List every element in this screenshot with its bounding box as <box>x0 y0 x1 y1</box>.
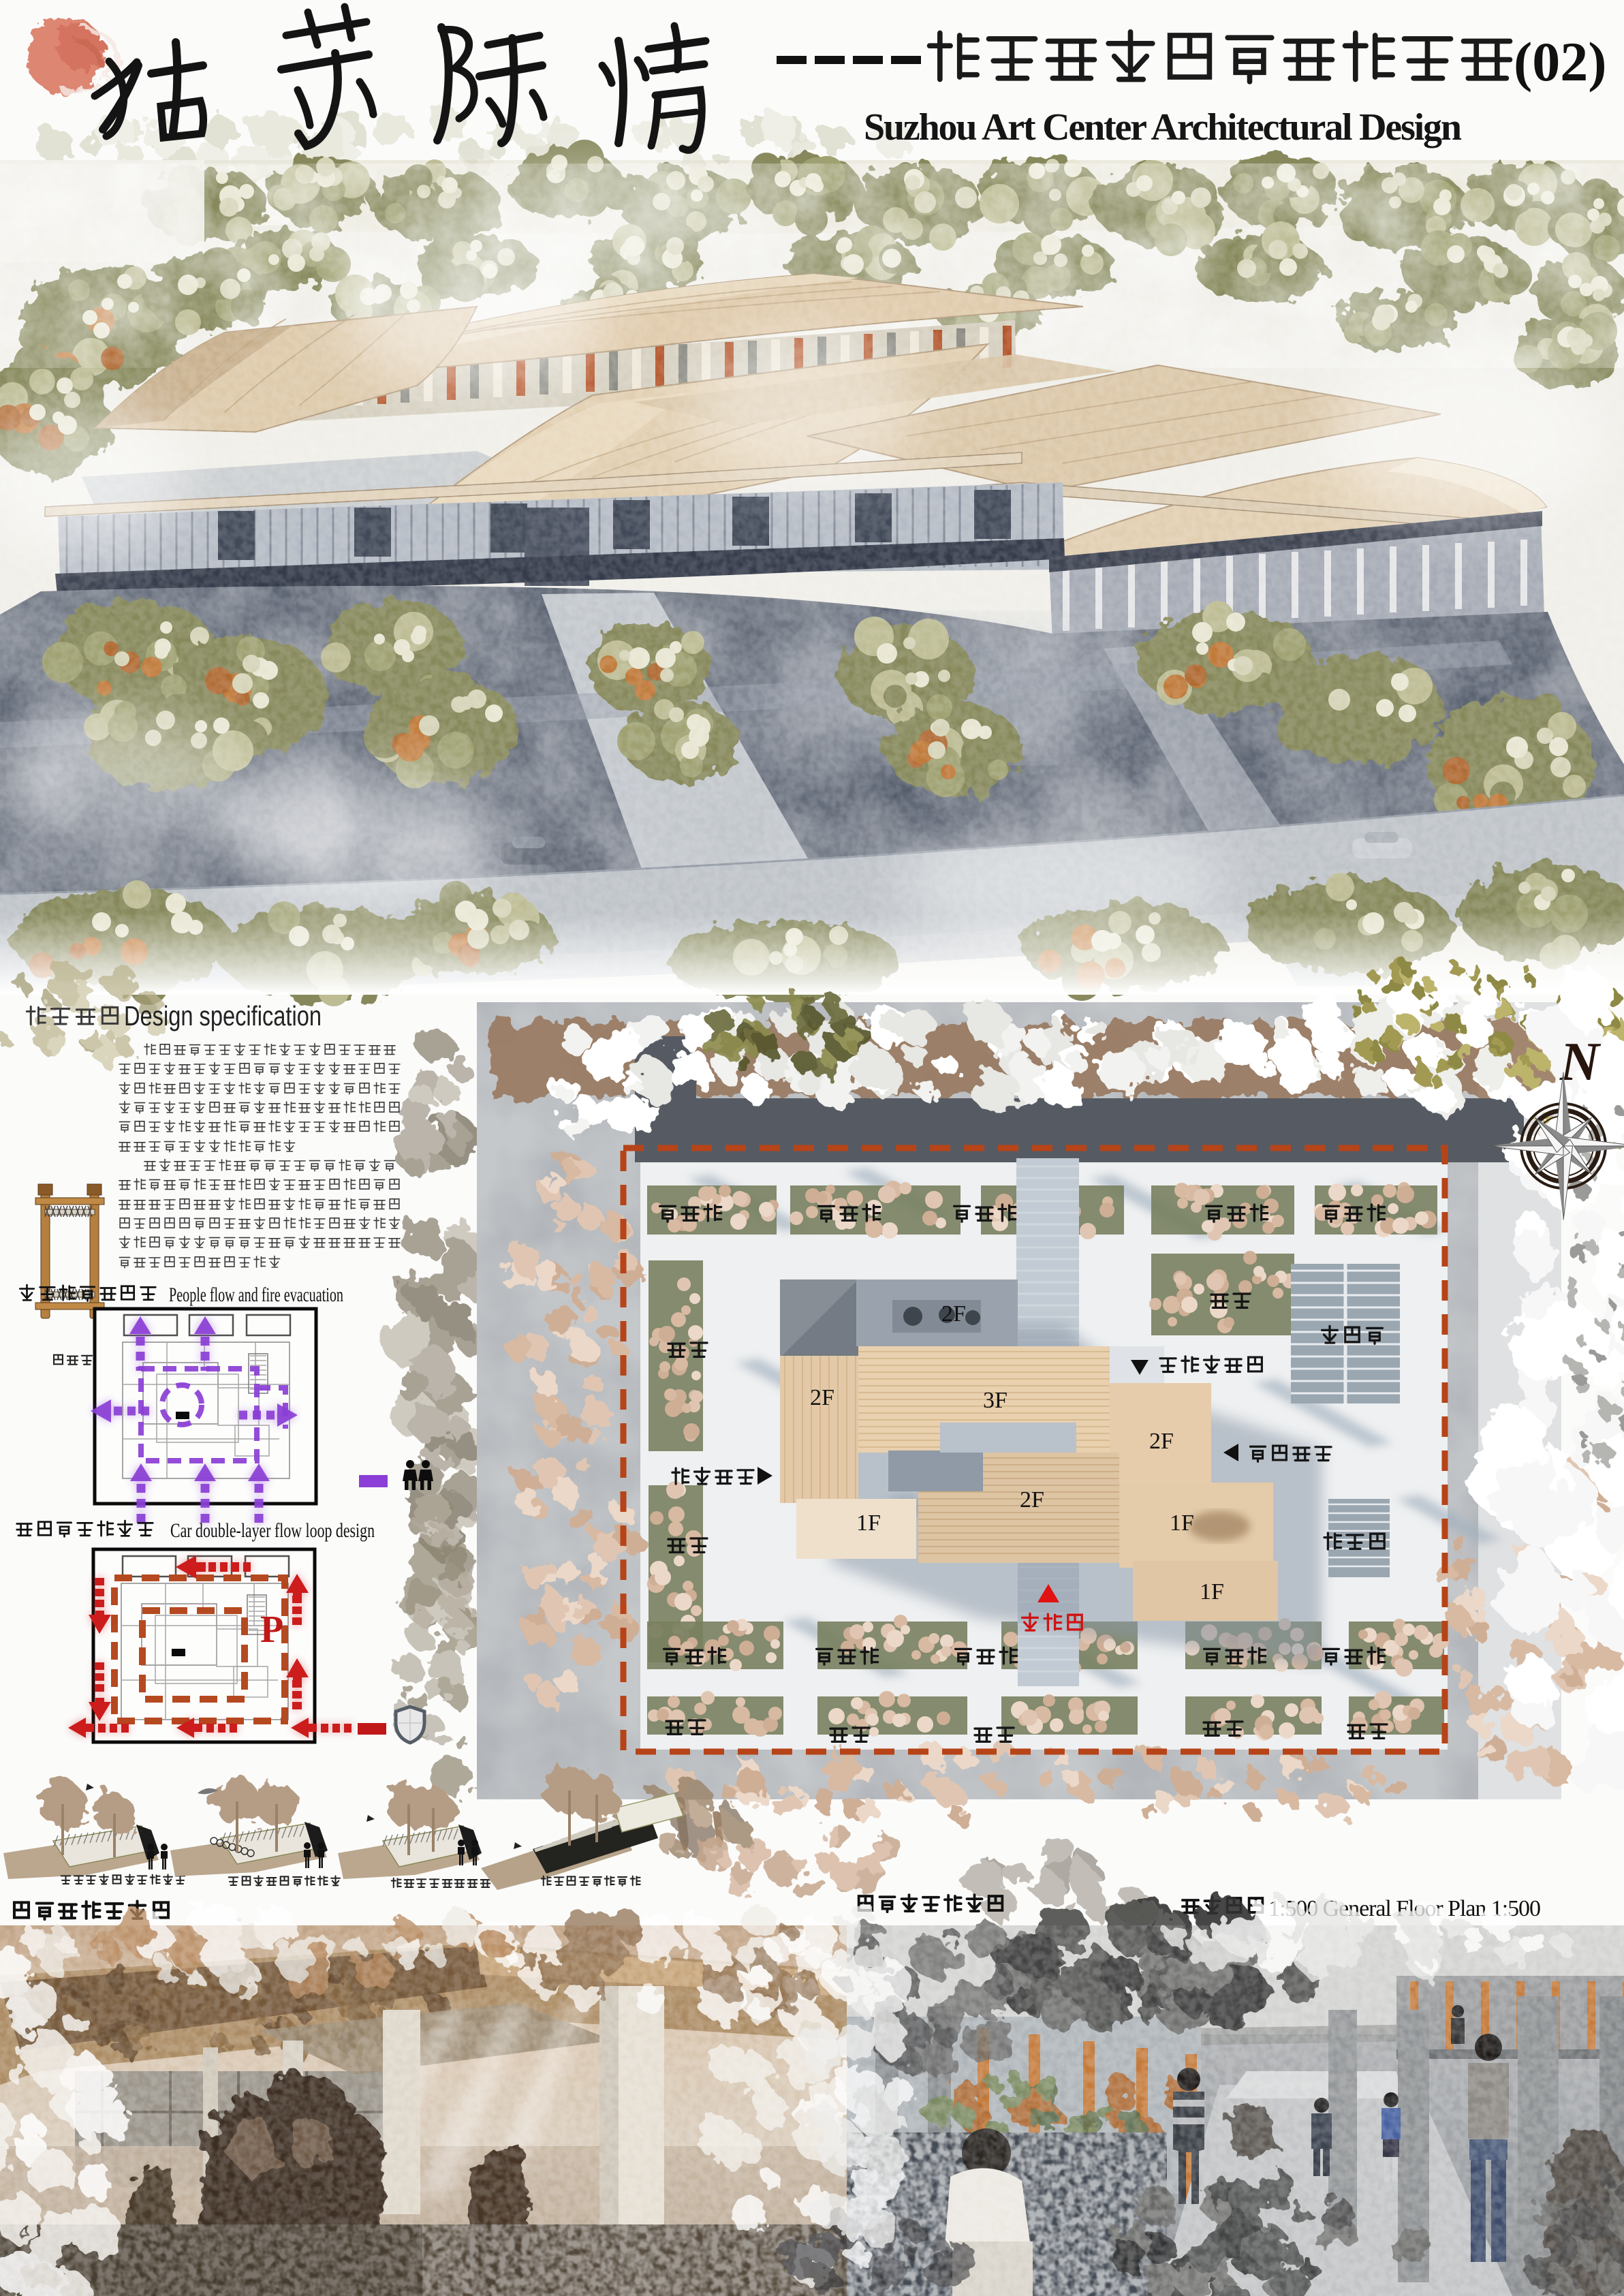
svg-text:People flow and fire evacuatio: People flow and fire evacuation <box>169 1284 343 1306</box>
svg-text:1F: 1F <box>1170 1510 1194 1536</box>
svg-text:Design specification: Design specification <box>124 1000 322 1031</box>
svg-text:2F: 2F <box>1149 1429 1174 1454</box>
svg-text:Car double-layer flow loop des: Car double-layer flow loop design <box>170 1519 375 1542</box>
svg-text:N: N <box>1559 1032 1602 1092</box>
svg-text:P: P <box>260 1609 283 1651</box>
svg-text:1F: 1F <box>1200 1579 1224 1604</box>
svg-text:2F: 2F <box>1020 1487 1044 1512</box>
svg-text:2F: 2F <box>941 1301 966 1327</box>
svg-text:(02): (02) <box>1514 31 1607 93</box>
svg-text:2F: 2F <box>810 1385 834 1410</box>
svg-text:3F: 3F <box>983 1388 1008 1413</box>
svg-text:1F: 1F <box>856 1510 881 1536</box>
svg-text:Suzhou Art Center Architectura: Suzhou Art Center Architectural Design <box>864 106 1462 149</box>
